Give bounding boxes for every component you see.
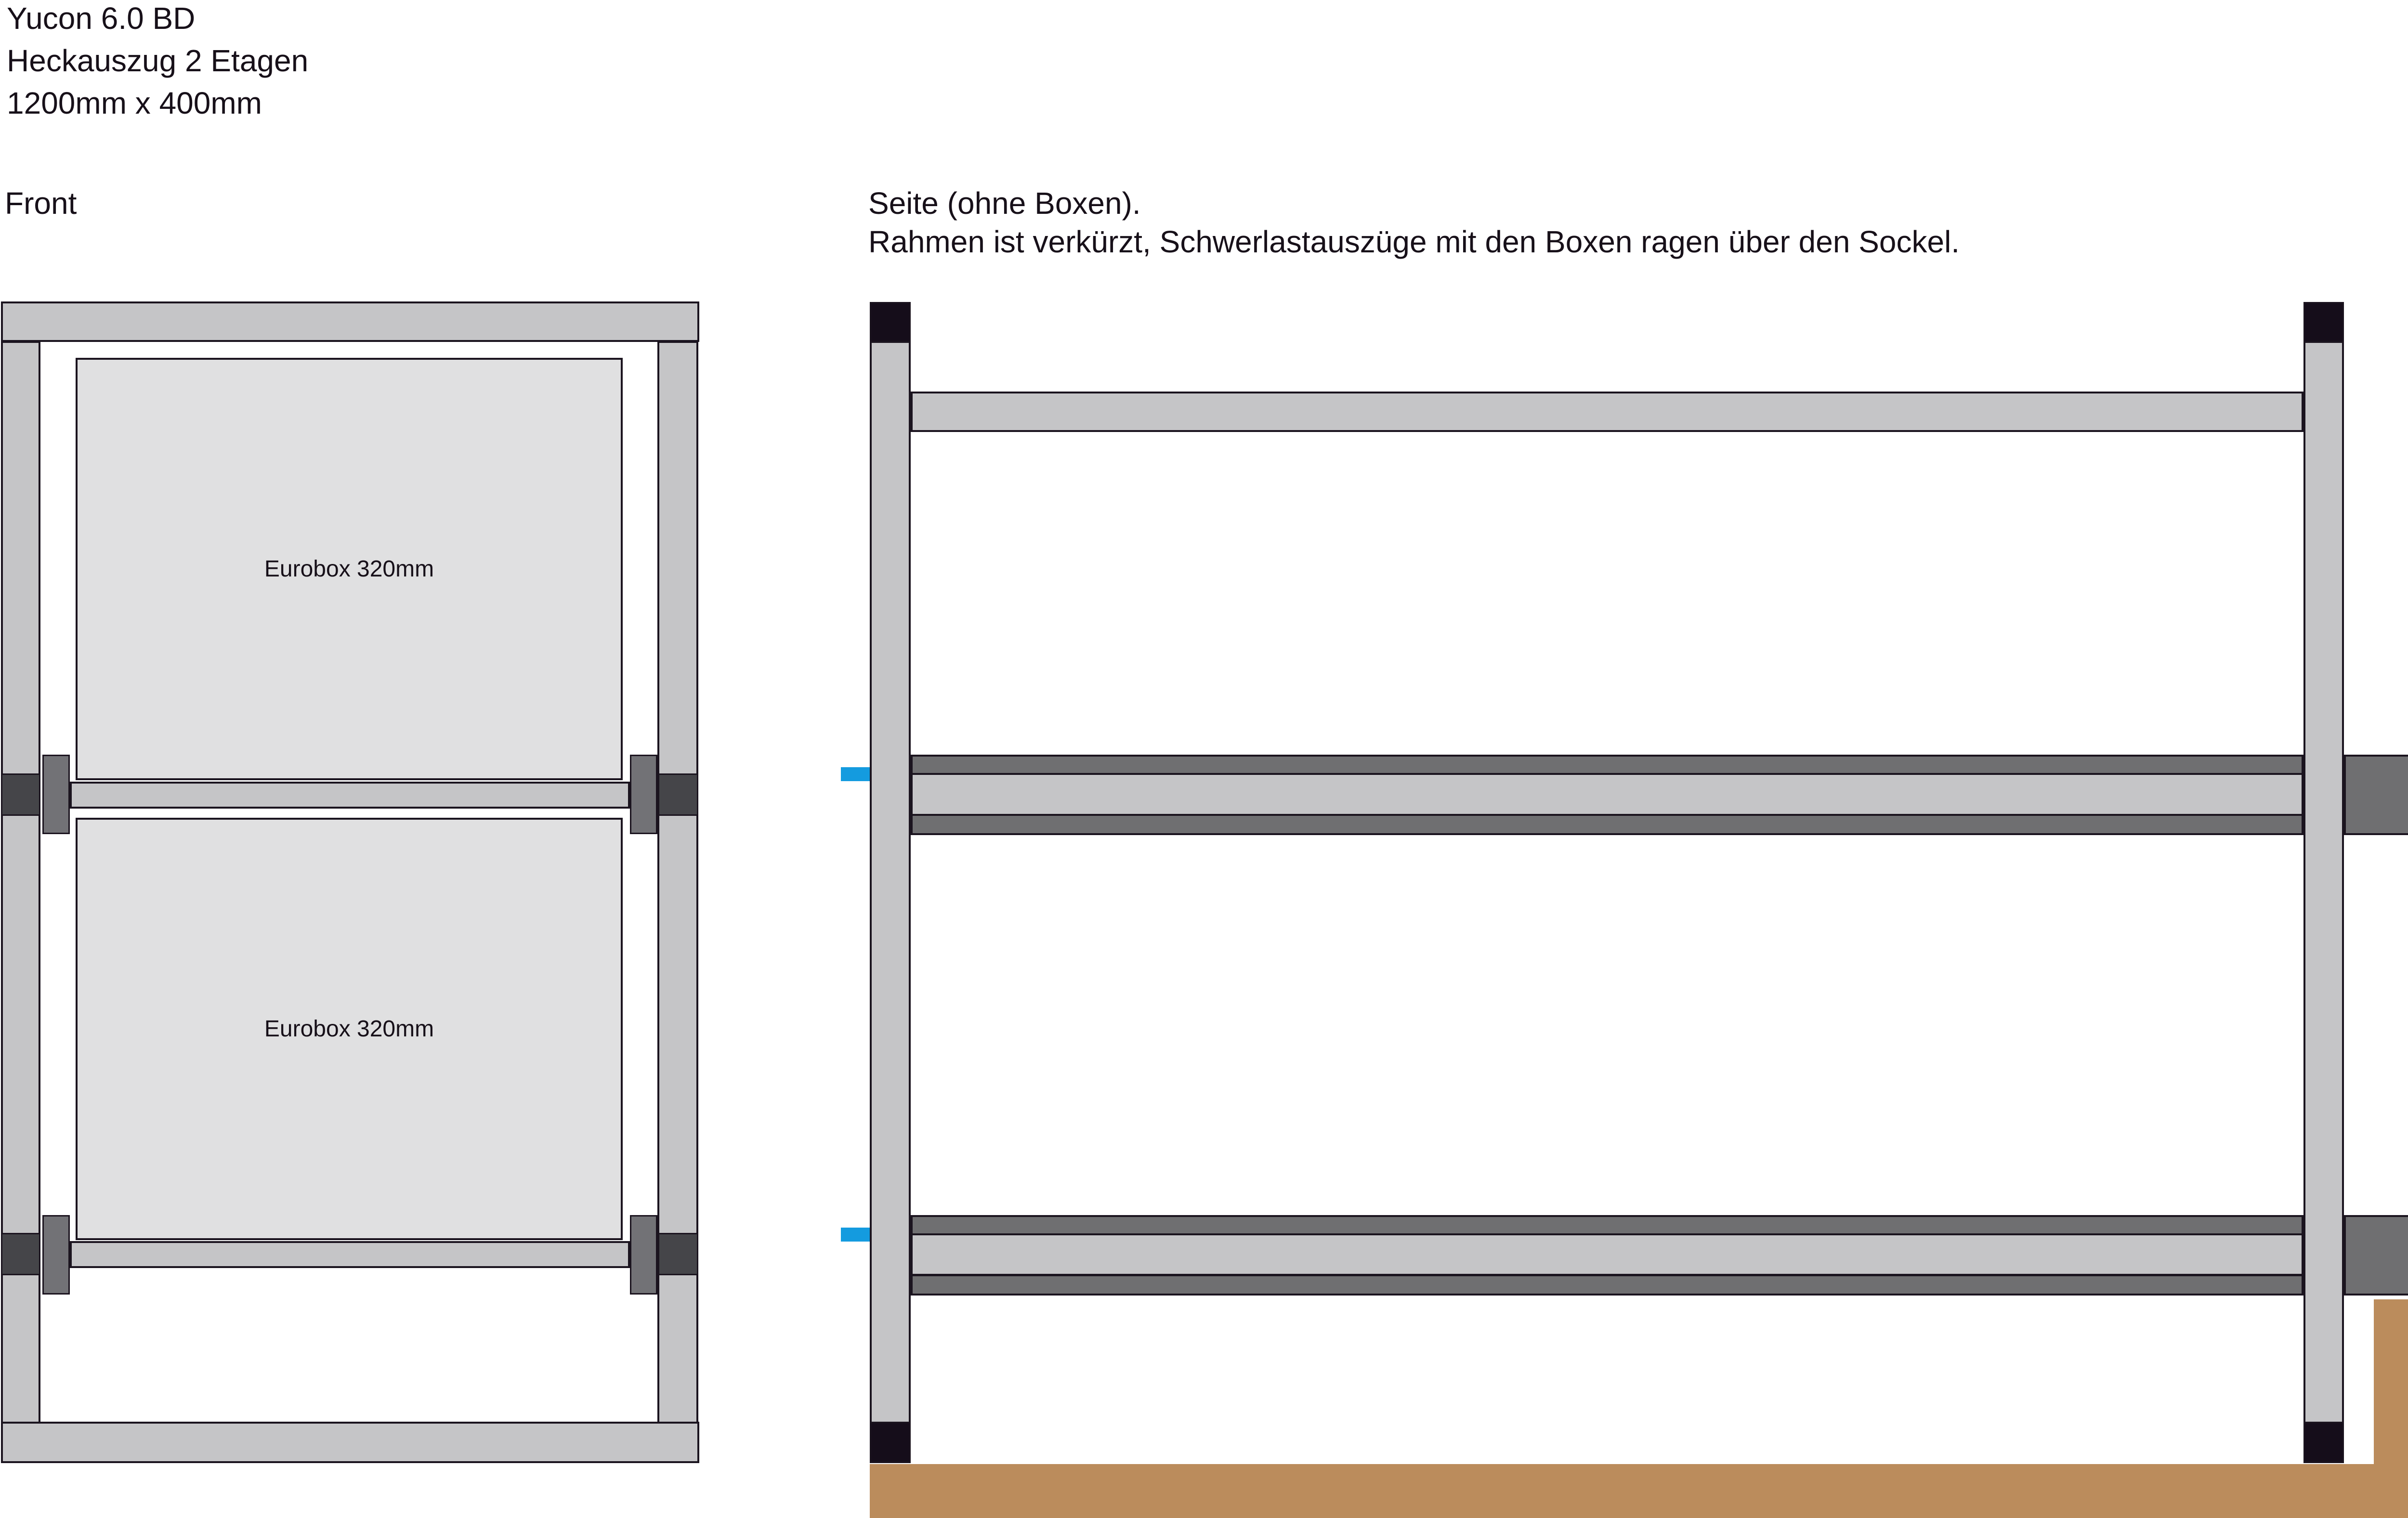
side-set2-upper-slide-rail bbox=[911, 1215, 2303, 1235]
sockel-step bbox=[2374, 1299, 2408, 1518]
sockel-base bbox=[870, 1464, 2408, 1518]
side-set1-lower-slide-rail bbox=[911, 814, 2303, 835]
title-line-product: Yucon 6.0 BD bbox=[7, 0, 308, 39]
front-row1-left-mount bbox=[1, 773, 40, 816]
eurobox-2: Eurobox 320mm bbox=[76, 818, 623, 1240]
side-view-label: Seite (ohne Boxen). bbox=[868, 184, 1960, 222]
side-left-post-top-cap bbox=[870, 302, 911, 342]
front-row1-cross-rail bbox=[70, 782, 630, 809]
front-row2-left-mount bbox=[1, 1233, 40, 1275]
eurobox-2-label: Eurobox 320mm bbox=[264, 1016, 434, 1042]
diagram-canvas: Yucon 6.0 BD Heckauszug 2 Etagen 1200mm … bbox=[0, 0, 2408, 1518]
front-row1-right-mount bbox=[658, 773, 698, 816]
title-block: Yucon 6.0 BD Heckauszug 2 Etagen 1200mm … bbox=[7, 0, 308, 124]
side-view-label-block: Seite (ohne Boxen). Rahmen ist verkürzt,… bbox=[868, 184, 1960, 261]
front-row2-right-mount bbox=[658, 1233, 698, 1275]
front-top-bar bbox=[1, 301, 699, 342]
side-set2-frame-rail bbox=[911, 1233, 2303, 1276]
side-set1-upper-slide-rail bbox=[911, 755, 2303, 775]
eurobox-1-label: Eurobox 320mm bbox=[264, 556, 434, 582]
highlight-marker-level2 bbox=[841, 1228, 870, 1242]
title-line-variant: Heckauszug 2 Etagen bbox=[7, 39, 308, 82]
front-row2-right-slide bbox=[630, 1215, 657, 1295]
eurobox-1: Eurobox 320mm bbox=[76, 358, 623, 780]
front-row1-left-slide bbox=[42, 755, 70, 834]
side-right-post-top-cap bbox=[2303, 302, 2344, 342]
front-row1-right-slide bbox=[630, 755, 657, 834]
side-set1-overhang-block bbox=[2344, 755, 2408, 835]
front-row2-cross-rail bbox=[70, 1241, 630, 1268]
side-right-post-bottom-cap bbox=[2303, 1422, 2344, 1463]
side-set2-overhang-block bbox=[2344, 1215, 2408, 1296]
front-bottom-bar bbox=[1, 1422, 699, 1463]
front-row2-left-slide bbox=[42, 1215, 70, 1295]
side-right-post bbox=[2303, 341, 2344, 1424]
side-left-post-bottom-cap bbox=[870, 1422, 911, 1463]
side-left-post bbox=[870, 341, 911, 1424]
side-set1-frame-rail bbox=[911, 773, 2303, 816]
highlight-marker-level1 bbox=[841, 767, 870, 781]
front-view-label: Front bbox=[5, 184, 77, 222]
side-top-rail bbox=[911, 392, 2303, 432]
side-view-note: Rahmen ist verkürzt, Schwerlastauszüge m… bbox=[868, 222, 1960, 261]
title-line-dimensions: 1200mm x 400mm bbox=[7, 82, 308, 124]
side-set2-lower-slide-rail bbox=[911, 1274, 2303, 1296]
